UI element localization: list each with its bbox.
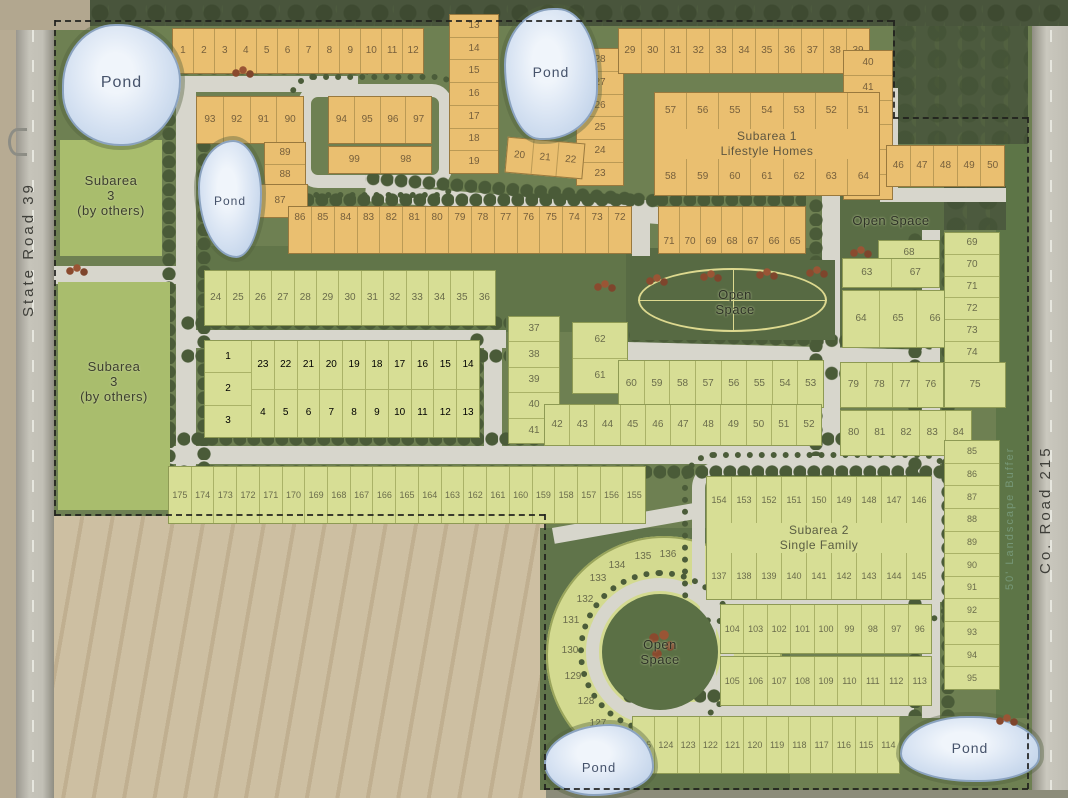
lot-20: 20 bbox=[320, 341, 343, 389]
lot-35: 35 bbox=[451, 271, 473, 325]
shrub-cluster bbox=[700, 270, 722, 283]
lot-145: 145 bbox=[907, 553, 931, 599]
lot-row-20-22: 202122 bbox=[505, 137, 586, 180]
lot-96: 96 bbox=[381, 97, 407, 143]
lot-141: 141 bbox=[807, 553, 832, 599]
shrub-cluster bbox=[850, 246, 872, 259]
lot-136: 136 bbox=[655, 549, 681, 560]
lot-76: 76 bbox=[918, 363, 943, 407]
lot-64: 64 bbox=[848, 159, 879, 195]
lot-row-29-39: 2930313233343536373839 bbox=[618, 28, 870, 74]
lot-156: 156 bbox=[601, 467, 624, 523]
lot-79: 79 bbox=[449, 207, 472, 253]
lot-58: 58 bbox=[655, 159, 687, 195]
lot-116: 116 bbox=[833, 717, 855, 773]
lot-150: 150 bbox=[807, 477, 832, 523]
lot-117: 117 bbox=[811, 717, 833, 773]
subarea2-title: Subarea 2 bbox=[707, 523, 931, 538]
lot-75: 75 bbox=[540, 207, 563, 253]
lot-23: 23 bbox=[577, 163, 623, 185]
open-space-label: OpenSpace bbox=[615, 638, 705, 668]
lot-35: 35 bbox=[756, 29, 779, 73]
subarea2-block: 154153152151150149148147146 Subarea 2 Si… bbox=[706, 476, 932, 600]
lot-12: 12 bbox=[403, 29, 423, 73]
lot-14: 14 bbox=[457, 341, 479, 389]
lot-92: 92 bbox=[945, 599, 999, 622]
lot-49: 49 bbox=[958, 146, 982, 186]
lot-65: 65 bbox=[785, 207, 805, 253]
lot-103: 103 bbox=[744, 605, 767, 653]
subarea1-block: 57565554535251 Subarea 1 Lifestyle Homes… bbox=[654, 92, 880, 196]
lot-74: 74 bbox=[563, 207, 586, 253]
pond-label: Pond bbox=[200, 194, 260, 208]
lot-58: 58 bbox=[670, 361, 696, 407]
street bbox=[880, 188, 1006, 202]
lot-31: 31 bbox=[665, 29, 688, 73]
lot-4: 4 bbox=[252, 390, 275, 438]
lot-69: 69 bbox=[701, 207, 722, 253]
lot-142: 142 bbox=[832, 553, 857, 599]
lot-64: 64 bbox=[843, 291, 880, 347]
lot-57: 57 bbox=[655, 93, 687, 129]
lot-col-69-74: 697071727374 bbox=[944, 232, 1000, 364]
lot-col-85-95: 8586878889909192939495 bbox=[944, 440, 1000, 690]
lot-151: 151 bbox=[782, 477, 807, 523]
lot-13: 13 bbox=[450, 15, 498, 38]
lot-107: 107 bbox=[768, 657, 791, 705]
lot-5: 5 bbox=[275, 390, 298, 438]
subarea3-label: Subarea3(by others) bbox=[58, 174, 164, 219]
lot-62: 62 bbox=[573, 323, 627, 359]
lot-91: 91 bbox=[251, 97, 278, 143]
lot-130: 130 bbox=[557, 645, 583, 656]
lot-18: 18 bbox=[366, 341, 389, 389]
lot-149: 149 bbox=[832, 477, 857, 523]
pond-north: Pond bbox=[504, 8, 598, 140]
lot-3: 3 bbox=[205, 406, 251, 437]
lot-29: 29 bbox=[317, 271, 339, 325]
pond-southeast: Pond bbox=[900, 716, 1040, 782]
shrub-cluster bbox=[232, 66, 254, 79]
subarea3-label: Subarea3(by others) bbox=[56, 360, 172, 405]
lot-133: 133 bbox=[585, 573, 611, 584]
landscape-buffer-note: 50' Landscape Buffer bbox=[1004, 330, 1016, 590]
lot-row-104-96: 10410310210110099989796 bbox=[720, 604, 932, 654]
lot-158: 158 bbox=[555, 467, 578, 523]
lot-col-1-3: 123 bbox=[205, 341, 252, 437]
lot-87: 87 bbox=[945, 486, 999, 509]
lot-135: 135 bbox=[630, 551, 656, 562]
lot-38: 38 bbox=[509, 342, 559, 367]
lot-75: 75 bbox=[944, 362, 1006, 408]
lot-48: 48 bbox=[696, 405, 721, 445]
lot-138: 138 bbox=[732, 553, 757, 599]
lot-53: 53 bbox=[784, 93, 816, 129]
lot-row-1-12: 123456789101112 bbox=[172, 28, 424, 74]
lot-56: 56 bbox=[722, 361, 748, 407]
lot-16: 16 bbox=[450, 83, 498, 106]
open-space-label: Open Space bbox=[836, 214, 946, 229]
lot-7: 7 bbox=[299, 29, 320, 73]
lot-99: 99 bbox=[838, 605, 861, 653]
lot-16: 16 bbox=[412, 341, 435, 389]
lot-row-125-114: 125124123122121120119118117116115114 bbox=[632, 716, 900, 774]
lot-26: 26 bbox=[250, 271, 272, 325]
lot-40: 40 bbox=[844, 51, 892, 76]
lot-11: 11 bbox=[412, 390, 435, 438]
lot-101: 101 bbox=[791, 605, 814, 653]
lot-96: 96 bbox=[909, 605, 931, 653]
lot-36: 36 bbox=[474, 271, 495, 325]
lot-row-46-50: 4647484950 bbox=[886, 145, 1005, 187]
lot-17: 17 bbox=[450, 106, 498, 129]
plat-boundary bbox=[55, 20, 893, 22]
northwest-field bbox=[0, 0, 90, 30]
lot-37: 37 bbox=[509, 317, 559, 342]
lot-79: 79 bbox=[841, 363, 867, 407]
lot-83: 83 bbox=[358, 207, 381, 253]
lot-75: 75 bbox=[945, 363, 1005, 407]
lot-13: 13 bbox=[457, 390, 479, 438]
lot-81: 81 bbox=[403, 207, 426, 253]
lot-82: 82 bbox=[893, 411, 919, 455]
lot-68: 68 bbox=[722, 207, 743, 253]
lot-32: 32 bbox=[687, 29, 710, 73]
lot-54: 54 bbox=[751, 93, 783, 129]
lot-90: 90 bbox=[945, 554, 999, 577]
lot-8: 8 bbox=[343, 390, 366, 438]
lot-53: 53 bbox=[798, 361, 823, 407]
lot-60: 60 bbox=[719, 159, 751, 195]
lot-92: 92 bbox=[224, 97, 251, 143]
shrub-cluster bbox=[594, 280, 616, 293]
lot-71: 71 bbox=[945, 277, 999, 299]
lot-row-137-145: 137138139140141142143144145 bbox=[707, 553, 931, 599]
lot-154: 154 bbox=[707, 477, 732, 523]
lot-9: 9 bbox=[366, 390, 389, 438]
lot-122: 122 bbox=[700, 717, 722, 773]
lot-row-4-13: 45678910111213 bbox=[252, 390, 479, 438]
lot-74: 74 bbox=[945, 342, 999, 363]
lot-132: 132 bbox=[572, 594, 598, 605]
plat-boundary bbox=[1027, 117, 1029, 789]
lot-10: 10 bbox=[361, 29, 382, 73]
lot-73: 73 bbox=[945, 320, 999, 342]
lot-67: 67 bbox=[892, 259, 940, 287]
plat-boundary bbox=[893, 117, 1028, 119]
lot-119: 119 bbox=[767, 717, 789, 773]
lot-77: 77 bbox=[893, 363, 919, 407]
lot-39: 39 bbox=[509, 368, 559, 393]
lot-85: 85 bbox=[945, 441, 999, 464]
lot-col-89-88: 8988 bbox=[264, 142, 306, 186]
plat-boundary bbox=[54, 20, 56, 516]
lot-49: 49 bbox=[721, 405, 746, 445]
lot-120: 120 bbox=[744, 717, 766, 773]
lot-row-63-67: 6367 bbox=[842, 258, 940, 288]
lot-146: 146 bbox=[907, 477, 931, 523]
lot-85: 85 bbox=[312, 207, 335, 253]
lot-81: 81 bbox=[867, 411, 893, 455]
lot-76: 76 bbox=[518, 207, 541, 253]
lot-34: 34 bbox=[429, 271, 451, 325]
lot-140: 140 bbox=[782, 553, 807, 599]
lot-row-42-52: 4243444546474849505152 bbox=[544, 404, 822, 446]
lot-114: 114 bbox=[878, 717, 899, 773]
lot-124: 124 bbox=[655, 717, 677, 773]
lot-144: 144 bbox=[882, 553, 907, 599]
lot-91: 91 bbox=[945, 577, 999, 600]
shrub-cluster bbox=[756, 268, 778, 281]
lot-115: 115 bbox=[856, 717, 878, 773]
lot-row-99-98: 9998 bbox=[328, 146, 432, 174]
lot-36: 36 bbox=[779, 29, 802, 73]
lot-152: 152 bbox=[757, 477, 782, 523]
pond-label: Pond bbox=[506, 64, 596, 80]
lot-54: 54 bbox=[773, 361, 799, 407]
lot-157: 157 bbox=[578, 467, 601, 523]
lot-25: 25 bbox=[227, 271, 249, 325]
lot-94: 94 bbox=[945, 645, 999, 668]
lot-98: 98 bbox=[381, 147, 432, 173]
lot-72: 72 bbox=[945, 298, 999, 320]
lot-111: 111 bbox=[862, 657, 885, 705]
lot-155: 155 bbox=[623, 467, 645, 523]
lot-row-24-36: 24252627282930313233343536 bbox=[204, 270, 496, 326]
lot-30: 30 bbox=[642, 29, 665, 73]
state-road-39-label: State Road 39 bbox=[20, 60, 50, 440]
lot-93: 93 bbox=[197, 97, 224, 143]
lot-24: 24 bbox=[205, 271, 227, 325]
street bbox=[632, 200, 650, 256]
site-plan-map: 123456789101112 13141516171819 282726252… bbox=[0, 0, 1068, 798]
lot-50: 50 bbox=[981, 146, 1004, 186]
subarea1-title: Subarea 1 bbox=[655, 129, 879, 144]
lot-row-71-65: 71706968676665 bbox=[658, 206, 806, 254]
subarea2-subtitle: Single Family bbox=[707, 538, 931, 553]
lot-50: 50 bbox=[747, 405, 772, 445]
lot-22: 22 bbox=[557, 142, 585, 178]
lot-9: 9 bbox=[340, 29, 361, 73]
lot-2: 2 bbox=[194, 29, 215, 73]
lot-45: 45 bbox=[621, 405, 646, 445]
lot-148: 148 bbox=[857, 477, 882, 523]
lot-7: 7 bbox=[320, 390, 343, 438]
lot-94: 94 bbox=[329, 97, 355, 143]
lot-27: 27 bbox=[272, 271, 294, 325]
lot-153: 153 bbox=[732, 477, 757, 523]
lot-1: 1 bbox=[205, 341, 251, 373]
lot-70: 70 bbox=[680, 207, 701, 253]
lot-31: 31 bbox=[362, 271, 384, 325]
lot-28: 28 bbox=[295, 271, 317, 325]
lot-29: 29 bbox=[619, 29, 642, 73]
lot-5: 5 bbox=[257, 29, 278, 73]
pond-label: Pond bbox=[546, 760, 652, 775]
plat-boundary bbox=[55, 514, 545, 516]
lot-110: 110 bbox=[838, 657, 861, 705]
plat-boundary bbox=[544, 514, 546, 790]
lot-71: 71 bbox=[659, 207, 680, 253]
lot-48: 48 bbox=[934, 146, 958, 186]
lot-98: 98 bbox=[862, 605, 885, 653]
lot-95: 95 bbox=[945, 667, 999, 689]
lot-112: 112 bbox=[885, 657, 908, 705]
lot-row-58-64: 58596061626364 bbox=[655, 159, 879, 195]
lot-63: 63 bbox=[816, 159, 848, 195]
lot-88: 88 bbox=[265, 165, 305, 186]
lot-73: 73 bbox=[586, 207, 609, 253]
lot-59: 59 bbox=[687, 159, 719, 195]
lot-6: 6 bbox=[298, 390, 321, 438]
lot-121: 121 bbox=[722, 717, 744, 773]
lot-block-1-23: 123 23222120191817161514 45678910111213 bbox=[204, 340, 480, 438]
lot-row-60-53: 6059585756555453 bbox=[618, 360, 824, 408]
shrub-cluster bbox=[66, 264, 88, 277]
lot-134: 134 bbox=[604, 560, 630, 571]
lot-97: 97 bbox=[885, 605, 908, 653]
lot-99: 99 bbox=[329, 147, 381, 173]
lot-20: 20 bbox=[506, 138, 535, 174]
lot-row-105-113: 105106107108109110111112113 bbox=[720, 656, 932, 706]
lot-139: 139 bbox=[757, 553, 782, 599]
lot-11: 11 bbox=[382, 29, 403, 73]
lot-33: 33 bbox=[407, 271, 429, 325]
lot-47: 47 bbox=[671, 405, 696, 445]
lot-128: 128 bbox=[573, 696, 599, 707]
lot-108: 108 bbox=[791, 657, 814, 705]
shrub-cluster bbox=[646, 274, 668, 287]
lot-6: 6 bbox=[278, 29, 299, 73]
lot-43: 43 bbox=[570, 405, 595, 445]
lot-10: 10 bbox=[389, 390, 412, 438]
lot-row-94-97: 94959697 bbox=[328, 96, 432, 144]
lot-78: 78 bbox=[867, 363, 893, 407]
lot-88: 88 bbox=[945, 509, 999, 532]
lot-51: 51 bbox=[848, 93, 879, 129]
lot-83: 83 bbox=[920, 411, 946, 455]
lot-86: 86 bbox=[289, 207, 312, 253]
lot-63: 63 bbox=[843, 259, 892, 287]
pond-label: Pond bbox=[902, 740, 1038, 756]
lot-97: 97 bbox=[406, 97, 431, 143]
lot-113: 113 bbox=[909, 657, 931, 705]
subarea1-subtitle: Lifestyle Homes bbox=[655, 144, 879, 159]
lot-56: 56 bbox=[687, 93, 719, 129]
lot-23: 23 bbox=[252, 341, 275, 389]
shrub-cluster bbox=[996, 714, 1018, 727]
lot-118: 118 bbox=[789, 717, 811, 773]
lot-95: 95 bbox=[355, 97, 381, 143]
lot-137: 137 bbox=[707, 553, 732, 599]
southwest-farm-field bbox=[54, 516, 546, 798]
lot-65: 65 bbox=[880, 291, 917, 347]
lot-80: 80 bbox=[426, 207, 449, 253]
lot-102: 102 bbox=[768, 605, 791, 653]
lot-18: 18 bbox=[450, 129, 498, 152]
lot-42: 42 bbox=[545, 405, 570, 445]
lot-19: 19 bbox=[450, 151, 498, 173]
west-field bbox=[0, 0, 16, 798]
lot-15: 15 bbox=[450, 60, 498, 83]
open-space-label: OpenSpace bbox=[690, 288, 780, 318]
lot-80: 80 bbox=[841, 411, 867, 455]
lot-19: 19 bbox=[343, 341, 366, 389]
lot-row-86-72: 868584838281807978777675747372 bbox=[288, 206, 632, 254]
lot-15: 15 bbox=[434, 341, 457, 389]
northeast-woods bbox=[893, 18, 1028, 144]
lot-131: 131 bbox=[558, 615, 584, 626]
lot-row-79-76: 79787776 bbox=[840, 362, 944, 408]
lot-105: 105 bbox=[721, 657, 744, 705]
lot-col-13-19: 13141516171819 bbox=[449, 14, 499, 174]
lot-61: 61 bbox=[751, 159, 783, 195]
lot-62: 62 bbox=[784, 159, 816, 195]
lot-row-154-146: 154153152151150149148147146 bbox=[707, 477, 931, 523]
pond-northwest: Pond bbox=[62, 24, 181, 146]
lot-104: 104 bbox=[721, 605, 744, 653]
lot-22: 22 bbox=[275, 341, 298, 389]
lot-86: 86 bbox=[945, 464, 999, 487]
lot-30: 30 bbox=[339, 271, 361, 325]
lot-84: 84 bbox=[335, 207, 358, 253]
street bbox=[176, 84, 196, 466]
pond-label: Pond bbox=[64, 74, 179, 92]
lot-89: 89 bbox=[265, 143, 305, 165]
lot-8: 8 bbox=[319, 29, 340, 73]
lot-143: 143 bbox=[857, 553, 882, 599]
plat-boundary bbox=[544, 788, 1028, 790]
lot-2: 2 bbox=[205, 373, 251, 405]
lot-55: 55 bbox=[747, 361, 773, 407]
lot-37: 37 bbox=[802, 29, 825, 73]
lot-60: 60 bbox=[619, 361, 645, 407]
lot-90: 90 bbox=[277, 97, 303, 143]
lot-77: 77 bbox=[495, 207, 518, 253]
lot-59: 59 bbox=[645, 361, 671, 407]
lot-row-57-51: 57565554535251 bbox=[655, 93, 879, 129]
lot-70: 70 bbox=[945, 255, 999, 277]
lot-72: 72 bbox=[609, 207, 631, 253]
lot-93: 93 bbox=[945, 622, 999, 645]
lot-69: 69 bbox=[945, 233, 999, 255]
lot-78: 78 bbox=[472, 207, 495, 253]
lot-47: 47 bbox=[911, 146, 935, 186]
lot-row-23-14: 23222120191817161514 bbox=[252, 341, 479, 390]
lot-100: 100 bbox=[815, 605, 838, 653]
lot-21: 21 bbox=[298, 341, 321, 389]
plat-boundary bbox=[893, 20, 895, 118]
co-road-215-label: Co. Road 215 bbox=[1037, 360, 1065, 660]
lot-52: 52 bbox=[816, 93, 848, 129]
lot-row-64-66: 646566 bbox=[842, 290, 954, 348]
lot-33: 33 bbox=[710, 29, 733, 73]
tree-line bbox=[286, 192, 634, 207]
lot-46: 46 bbox=[887, 146, 911, 186]
lot-147: 147 bbox=[882, 477, 907, 523]
lot-106: 106 bbox=[744, 657, 767, 705]
lot-51: 51 bbox=[772, 405, 797, 445]
lot-123: 123 bbox=[678, 717, 700, 773]
shrub-cluster bbox=[806, 266, 828, 279]
lot-14: 14 bbox=[450, 38, 498, 61]
lot-32: 32 bbox=[384, 271, 406, 325]
lot-52: 52 bbox=[797, 405, 821, 445]
lot-66: 66 bbox=[764, 207, 785, 253]
lot-34: 34 bbox=[733, 29, 756, 73]
lot-89: 89 bbox=[945, 532, 999, 555]
lot-44: 44 bbox=[595, 405, 620, 445]
